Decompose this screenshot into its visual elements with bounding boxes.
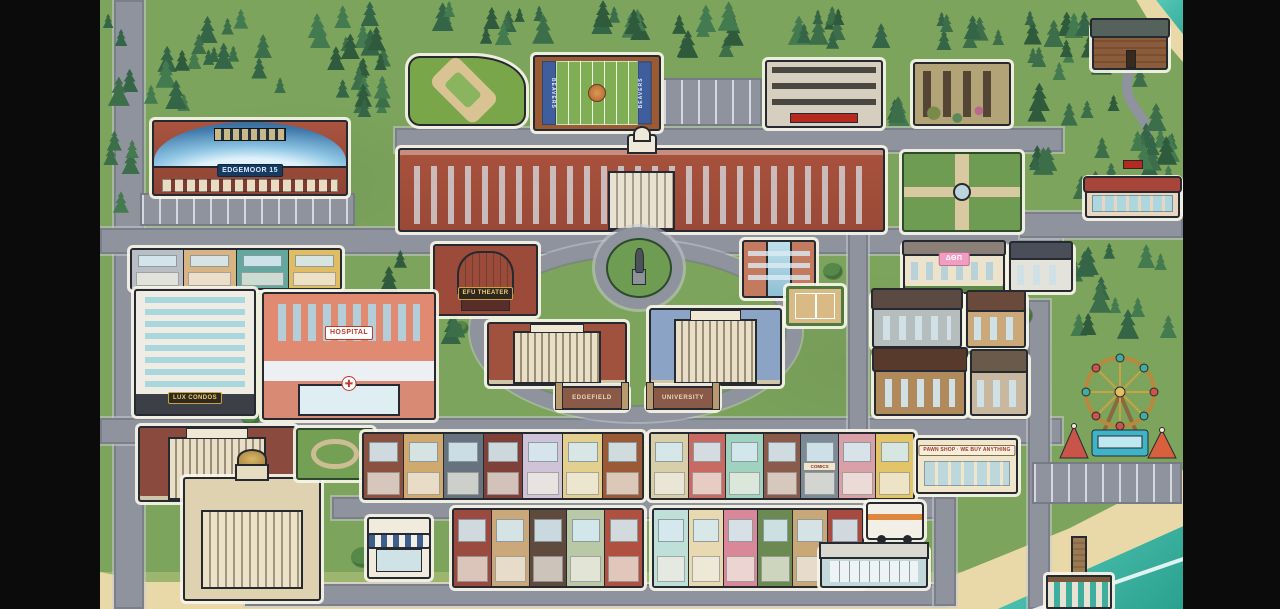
- carnival-parking-lot: [1032, 462, 1182, 504]
- shop-unit[interactable]: [404, 434, 444, 498]
- shop-unit[interactable]: [839, 434, 877, 498]
- shop-unit[interactable]: [724, 510, 759, 586]
- edgefield-hall[interactable]: [487, 322, 627, 386]
- edgefield-arch-sign[interactable]: EDGEFIELD: [556, 386, 628, 410]
- sorority-house[interactable]: ΔΘΠ: [903, 244, 1005, 294]
- shop-unit[interactable]: [530, 510, 568, 586]
- tennis-court[interactable]: [786, 286, 844, 326]
- house-unit[interactable]: [132, 250, 184, 288]
- road-east-cross-street: [848, 228, 868, 442]
- parking-garage[interactable]: [765, 60, 883, 128]
- shop-unit[interactable]: [603, 434, 642, 498]
- university-hall[interactable]: [649, 308, 782, 386]
- shop-row-east[interactable]: COMICS: [649, 432, 915, 500]
- shop-unit[interactable]: [764, 434, 802, 498]
- hospital-sign: HOSPITAL: [325, 326, 373, 340]
- shop-unit[interactable]: COMICS: [801, 434, 839, 498]
- shop-sign: COMICS: [803, 462, 837, 471]
- pier-pavilion: [1046, 575, 1112, 609]
- movie-poster-banner: [214, 128, 287, 141]
- campus-arch-sign-text: UNIVERSITY: [658, 393, 708, 403]
- town-map[interactable]: EDGEMOOR 15BEAVERSBEAVERSEFU THEATERΔΘΠL…: [0, 0, 1280, 609]
- shop-unit[interactable]: [454, 510, 492, 586]
- sorority-banner: ΔΘΠ: [939, 252, 970, 266]
- formal-garden[interactable]: [902, 152, 1022, 232]
- campus-arch-sign-text: EDGEFIELD: [568, 393, 616, 403]
- gold-dome: [235, 449, 269, 481]
- field-parking-lot: [662, 78, 762, 126]
- baseball-field[interactable]: [408, 56, 526, 126]
- endzone-text-left: BEAVERS: [542, 61, 556, 124]
- shop-unit[interactable]: [876, 434, 913, 498]
- corner-cafe[interactable]: [367, 517, 431, 579]
- abandoned-building[interactable]: [913, 62, 1011, 126]
- founder-statue: [631, 248, 647, 285]
- road-market-cross-street: [934, 497, 956, 606]
- shop-unit[interactable]: [654, 510, 689, 586]
- beach-pier[interactable]: [1046, 536, 1112, 609]
- letterbox-left: [0, 0, 100, 609]
- campus-main-hall[interactable]: [398, 148, 885, 232]
- shop-unit[interactable]: [563, 434, 603, 498]
- shop-unit[interactable]: [492, 510, 530, 586]
- houses-row[interactable]: [130, 248, 342, 290]
- white-house[interactable]: [1009, 246, 1073, 292]
- ferris-wheel-icon: [1056, 348, 1184, 464]
- shop-unit[interactable]: [758, 510, 793, 586]
- endzone-text-right: BEAVERS: [638, 61, 652, 124]
- pawn-shop-sign: PAWN SHOP · WE BUY ANYTHING: [918, 445, 1015, 456]
- tudor-house[interactable]: [874, 354, 966, 416]
- shop-unit[interactable]: [726, 434, 764, 498]
- efu-theater[interactable]: EFU THEATER: [433, 244, 538, 316]
- marquee-sign: EFU THEATER: [458, 287, 514, 299]
- house-unit[interactable]: [237, 250, 289, 288]
- garden-fountain: [953, 183, 971, 201]
- garden-house[interactable]: [966, 296, 1026, 348]
- diner[interactable]: [1085, 178, 1180, 218]
- carnival[interactable]: [1056, 348, 1184, 464]
- diner-roof-sign: [1123, 160, 1143, 169]
- university-arch-sign[interactable]: UNIVERSITY: [647, 386, 719, 410]
- shop-row-west[interactable]: [362, 432, 644, 500]
- craftsman-house[interactable]: [872, 294, 962, 348]
- forest-cabin[interactable]: [1092, 26, 1168, 70]
- shop-unit[interactable]: [651, 434, 689, 498]
- house-unit[interactable]: [289, 250, 340, 288]
- shop-unit[interactable]: [444, 434, 484, 498]
- statue-plaza[interactable]: [606, 238, 672, 298]
- hospital[interactable]: HOSPITAL✚: [262, 292, 436, 420]
- shop-unit[interactable]: [523, 434, 563, 498]
- lux-condos[interactable]: LUX CONDOS: [134, 289, 256, 416]
- pawn-shop[interactable]: PAWN SHOP · WE BUY ANYTHING: [916, 438, 1018, 494]
- shop-unit[interactable]: [689, 434, 727, 498]
- edgemoor-cinema[interactable]: EDGEMOOR 15: [152, 120, 348, 196]
- shop-unit[interactable]: [689, 510, 724, 586]
- shop-unit[interactable]: [567, 510, 605, 586]
- transit-stop[interactable]: [820, 548, 928, 588]
- game-viewport: EDGEMOOR 15BEAVERSBEAVERSEFU THEATERΔΘΠL…: [0, 0, 1280, 609]
- condos-sign: LUX CONDOS: [168, 392, 222, 404]
- clock-tower-cupola: [627, 134, 657, 154]
- red-cross-icon: ✚: [342, 376, 357, 391]
- shop-row-south-west[interactable]: [452, 508, 644, 588]
- cinema-sign: EDGEMOOR 15: [217, 164, 283, 178]
- city-hall[interactable]: [183, 477, 321, 601]
- house-unit[interactable]: [184, 250, 236, 288]
- arena-parking-lot: [140, 193, 355, 226]
- shop-unit[interactable]: [484, 434, 524, 498]
- football-field[interactable]: BEAVERSBEAVERS: [533, 55, 661, 131]
- food-truck[interactable]: [866, 502, 924, 540]
- letterbox-right: [1183, 0, 1280, 609]
- shop-unit[interactable]: [364, 434, 404, 498]
- stone-house[interactable]: [970, 356, 1028, 416]
- shop-unit[interactable]: [605, 510, 642, 586]
- pier-boardwalk: [1071, 536, 1087, 578]
